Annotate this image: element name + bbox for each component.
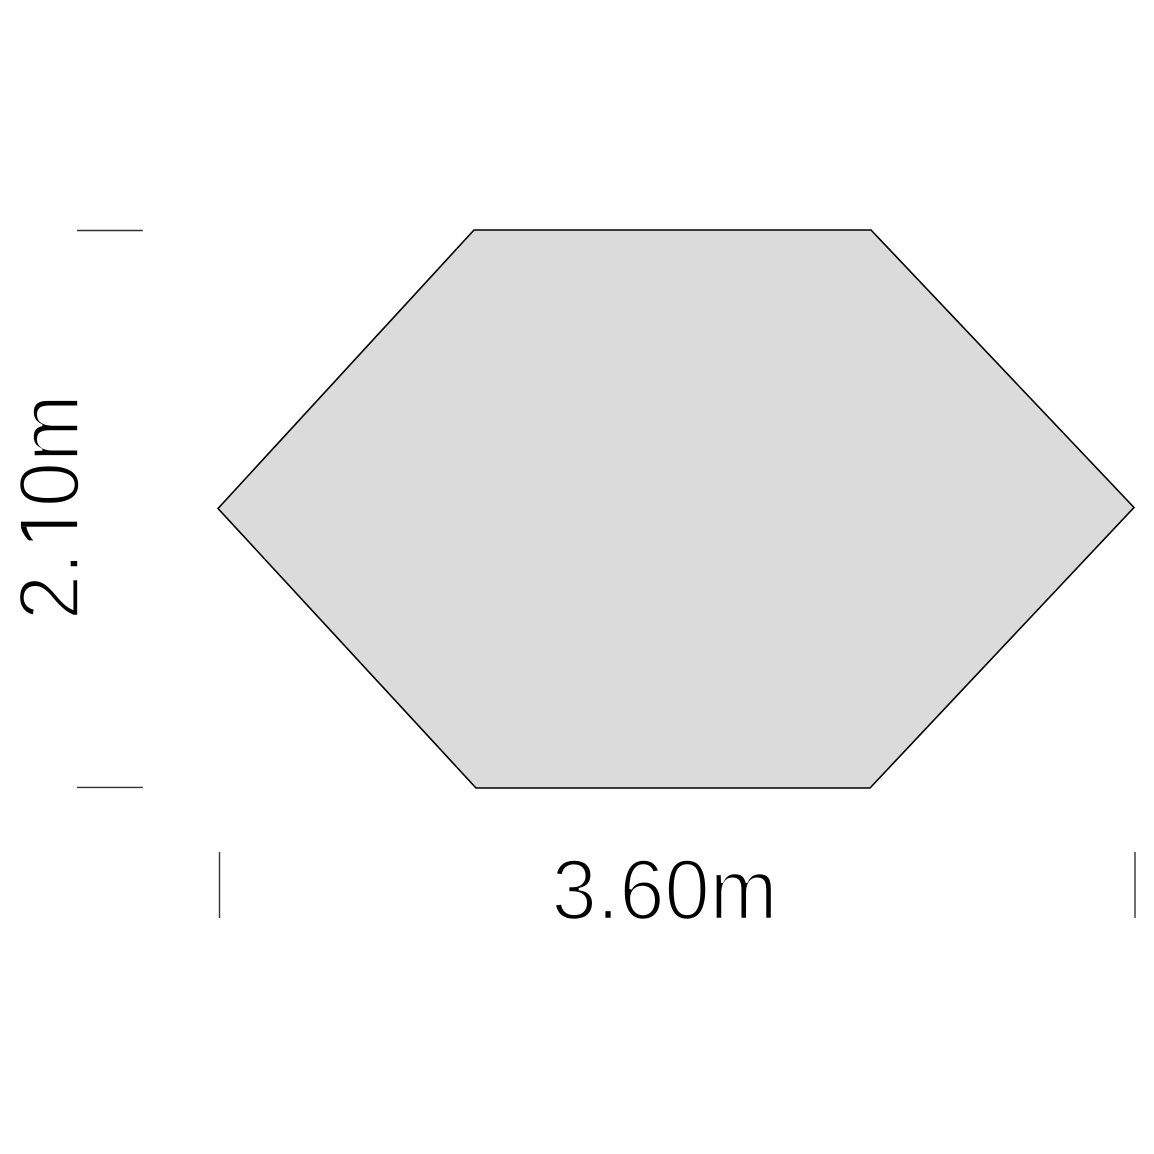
svg-text:3.60m: 3.60m [552, 843, 778, 938]
